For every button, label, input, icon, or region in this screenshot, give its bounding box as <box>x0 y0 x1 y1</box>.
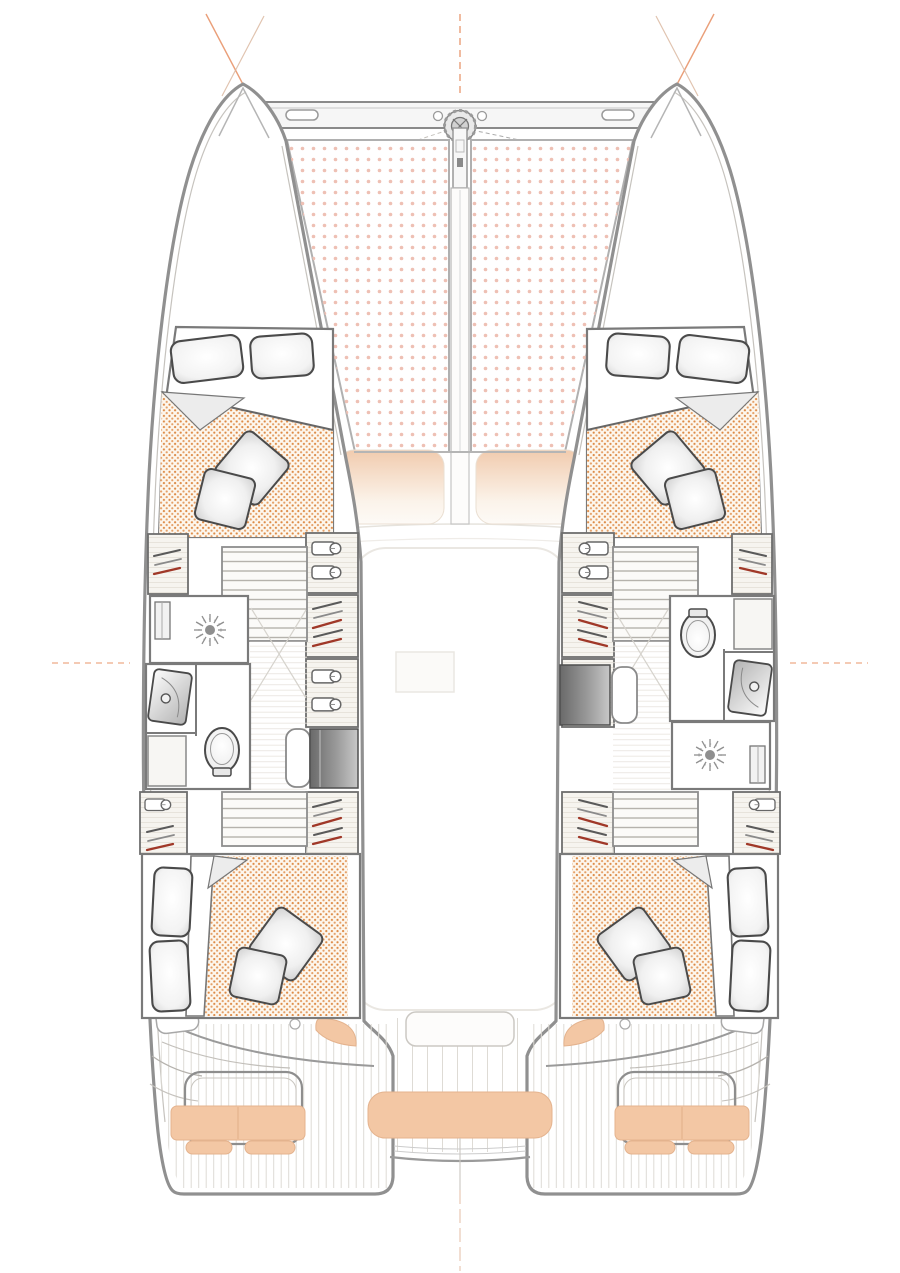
saloon-door-ghost <box>406 1012 514 1046</box>
catamaran-floor-plan <box>0 0 900 1273</box>
desk-chair <box>286 729 310 787</box>
bathroom-port <box>146 596 250 789</box>
bathroom-starboard <box>670 596 774 789</box>
desk-port <box>286 729 358 788</box>
deck-fitting <box>478 112 487 121</box>
desk-top <box>310 729 358 788</box>
desk-chair <box>612 667 637 723</box>
beam-slot <box>602 110 634 120</box>
desk-starboard <box>560 665 637 725</box>
deck-fitting <box>434 112 443 121</box>
center-bench-cushion <box>368 1092 552 1138</box>
desk-top <box>560 665 610 725</box>
beam-slot <box>286 110 318 120</box>
